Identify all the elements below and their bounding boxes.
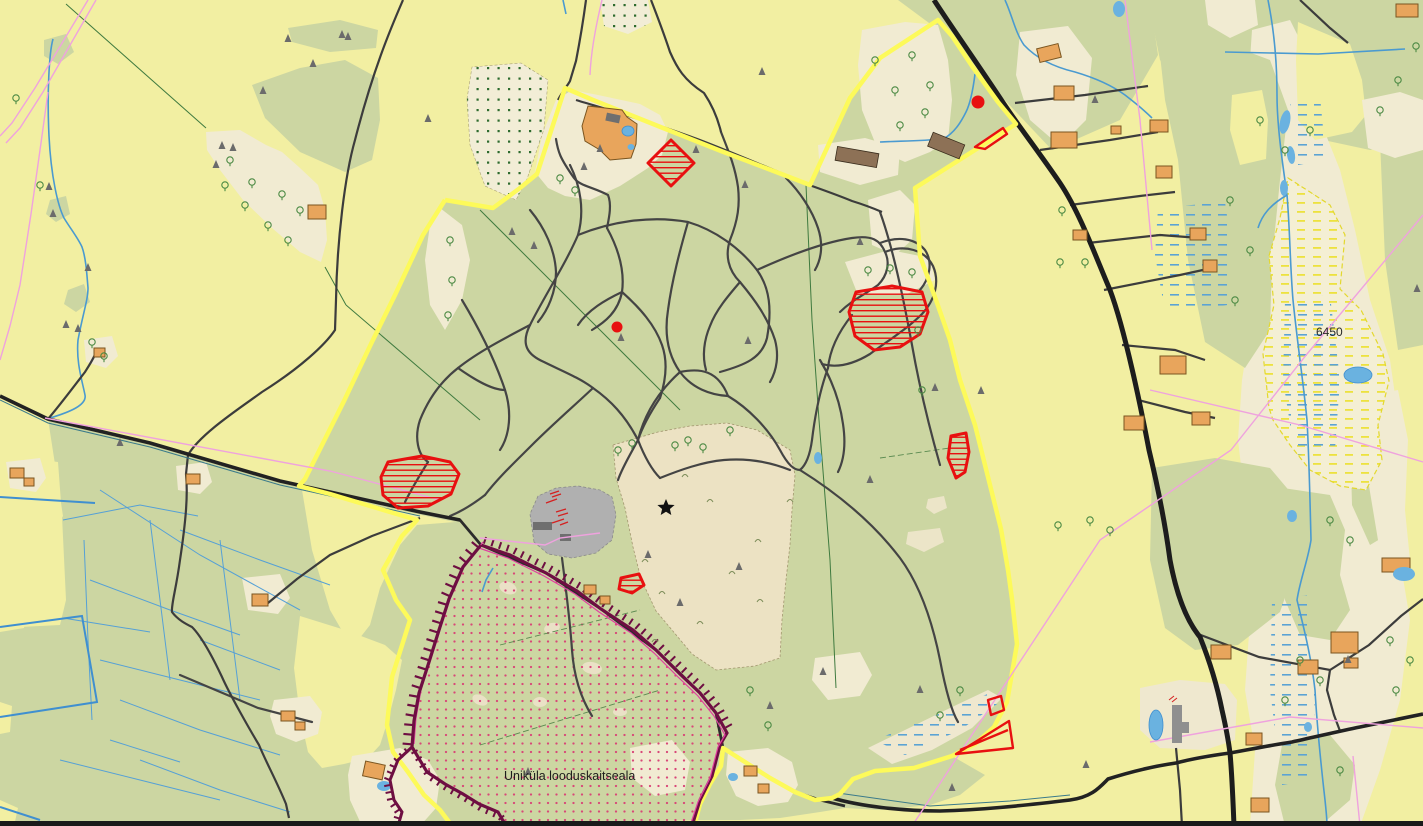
svg-text:Uniküla looduskaitseala: Uniküla looduskaitseala	[504, 769, 635, 783]
svg-text:6450: 6450	[1316, 325, 1343, 339]
